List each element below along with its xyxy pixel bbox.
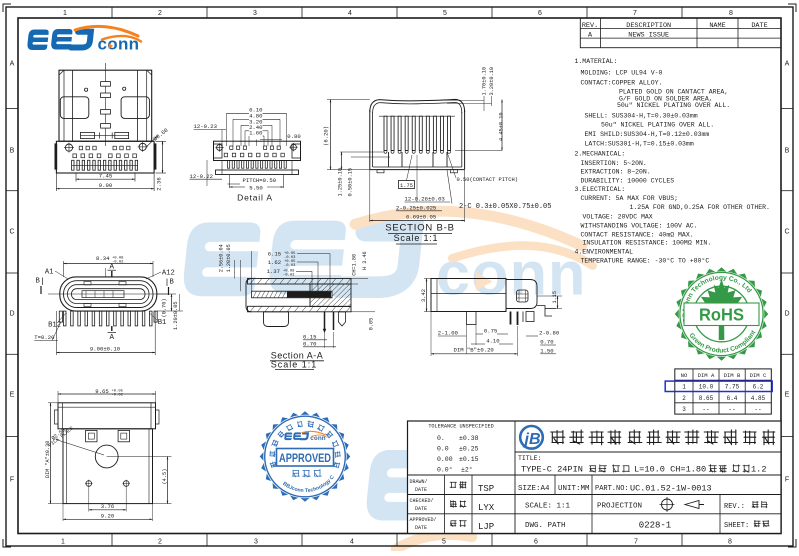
svg-text:1.70±0.10: 1.70±0.10 (482, 67, 488, 96)
svg-text:2: 2 (682, 395, 686, 402)
svg-text:TITLE:: TITLE: (518, 455, 541, 462)
svg-text:PROJECTION: PROJECTION (597, 503, 642, 511)
svg-text:LYX: LYX (478, 503, 495, 513)
svg-text:TSP: TSP (478, 484, 494, 494)
svg-text:0.50±0.15: 0.50±0.15 (348, 168, 354, 197)
svg-text:TOLERANCE UNSPECIFIED: TOLERANCE UNSPECIFIED (428, 424, 493, 430)
svg-text:12-0.26±0.03: 12-0.26±0.03 (405, 196, 445, 203)
svg-text:1.MATERIAL:: 1.MATERIAL: (575, 58, 618, 65)
svg-text:DURABILITY: 10000 CYCLES: DURABILITY: 10000 CYCLES (581, 178, 675, 185)
svg-text:2: 2 (158, 10, 162, 17)
svg-text:50u" NICKEL PLATING OVER ALL.: 50u" NICKEL PLATING OVER ALL. (601, 122, 714, 129)
svg-text:0.: 0. (437, 435, 445, 442)
svg-text:7.75: 7.75 (725, 384, 740, 391)
svg-text:DIM A: DIM A (698, 372, 715, 379)
svg-text:0.80: 0.80 (287, 133, 301, 140)
svg-text:--: -- (728, 406, 735, 413)
svg-text:SHEET:: SHEET: (724, 522, 749, 530)
svg-text:A: A (785, 61, 790, 68)
svg-text:CONTACT:COPPER ALLOY.: CONTACT:COPPER ALLOY. (581, 80, 663, 87)
svg-text:SCALE: 1:1: SCALE: 1:1 (525, 503, 571, 511)
svg-text:UC.01.52-1W-0013: UC.01.52-1W-0013 (630, 484, 712, 494)
svg-text:±0.15: ±0.15 (459, 456, 479, 463)
svg-text:(6.20): (6.20) (323, 126, 330, 146)
svg-text:0.05: 0.05 (369, 318, 375, 330)
svg-text:4: 4 (348, 10, 352, 17)
svg-text:DESCRIPTION: DESCRIPTION (626, 22, 671, 30)
svg-text:1.20±0.05: 1.20±0.05 (226, 244, 232, 272)
svg-text:DIM C: DIM C (750, 372, 767, 379)
svg-text:E: E (785, 392, 790, 399)
svg-text:9.65: 9.65 (95, 388, 108, 395)
svg-text:DRAWN/: DRAWN/ (410, 479, 428, 485)
svg-text:1.25A FOR GND,0.25A FOR OTHER: 1.25A FOR GND,0.25A FOR OTHER OTHER. (630, 204, 770, 211)
svg-text:INSULATION RESISTANCE: 100MΩ M: INSULATION RESISTANCE: 100MΩ MIN. (583, 240, 712, 247)
svg-text:3.42: 3.42 (421, 289, 427, 302)
svg-text:MOLDING: LCP UL94 V-0: MOLDING: LCP UL94 V-0 (581, 70, 663, 77)
svg-text:4.85: 4.85 (751, 395, 766, 402)
svg-text:NAME: NAME (709, 22, 725, 30)
svg-text:--: -- (702, 406, 709, 413)
svg-text:TYPE-C 24PIN: TYPE-C 24PIN (521, 465, 583, 475)
svg-text:L=10.0 CH=1.80: L=10.0 CH=1.80 (634, 465, 706, 475)
svg-text:2.56±0.04: 2.56±0.04 (219, 244, 225, 272)
svg-text:NEWS ISSUE: NEWS ISSUE (628, 32, 669, 40)
svg-text:1.37: 1.37 (267, 268, 280, 275)
svg-text:DATE: DATE (751, 22, 767, 30)
svg-text:TEMPERATURE RANGE: -30°C TO +8: TEMPERATURE RANGE: -30°C TO +80°C (581, 257, 710, 265)
svg-text:DIM "A"±0.30: DIM "A"±0.30 (45, 441, 51, 478)
svg-text:B: B (10, 148, 15, 155)
svg-text:B: B (785, 148, 790, 155)
svg-text:2-0.80: 2-0.80 (539, 330, 560, 337)
svg-text:2.36: 2.36 (156, 177, 163, 190)
svg-text:0.50(CONTACT PITCH): 0.50(CONTACT PITCH) (457, 177, 518, 183)
svg-text:8: 8 (728, 539, 732, 546)
svg-text:DWG. PATH: DWG. PATH (525, 522, 566, 530)
svg-text:1: 1 (63, 10, 67, 17)
svg-text:REV.:: REV.: (724, 503, 745, 511)
svg-text:9.00±0.10: 9.00±0.10 (90, 346, 121, 353)
svg-text:INSERTION: 5~20N.: INSERTION: 5~20N. (581, 160, 647, 167)
svg-text:0.15: 0.15 (303, 333, 316, 340)
svg-text:0.00: 0.00 (437, 456, 453, 463)
svg-text:F: F (10, 477, 14, 484)
svg-text:DATE: DATE (415, 525, 427, 531)
svg-text:4.45±0.10: 4.45±0.10 (499, 112, 505, 141)
svg-text:7.45: 7.45 (99, 173, 112, 180)
svg-text:PART.NO:: PART.NO: (595, 485, 629, 493)
svg-text:VOLTAGE: 20VDC MAX: VOLTAGE: 20VDC MAX (583, 213, 653, 220)
svg-text:1.2: 1.2 (751, 465, 766, 475)
svg-text:0228-1: 0228-1 (639, 521, 671, 531)
svg-text:APPROVED/: APPROVED/ (410, 517, 437, 523)
svg-text:6.2: 6.2 (753, 384, 764, 391)
svg-text:A: A (110, 334, 115, 342)
svg-text:6: 6 (534, 539, 538, 546)
svg-text:D: D (9, 311, 14, 318)
svg-text:DATE: DATE (415, 506, 427, 512)
svg-text:5: 5 (443, 10, 447, 17)
svg-text:1.62: 1.62 (268, 259, 281, 266)
svg-text:0.0°: 0.0° (437, 466, 453, 474)
svg-text:T=0.20: T=0.20 (34, 334, 55, 341)
svg-text:7: 7 (634, 539, 638, 546)
svg-text:2-1.00: 2-1.00 (438, 330, 459, 337)
svg-text:E: E (10, 392, 15, 399)
svg-text:3: 3 (254, 539, 258, 546)
svg-text:1.20±0.05: 1.20±0.05 (173, 301, 179, 330)
svg-text:A1: A1 (45, 269, 54, 277)
svg-text:REV.: REV. (582, 22, 598, 30)
svg-text:9.00: 9.00 (99, 182, 113, 189)
svg-text:0.70: 0.70 (540, 339, 554, 346)
svg-text:1: 1 (682, 384, 686, 391)
svg-text:3.ELECTRICAL:: 3.ELECTRICAL: (575, 186, 626, 193)
svg-text:2-C 0.3±0.05X0.75±0.05: 2-C 0.3±0.05X0.75±0.05 (459, 203, 551, 211)
svg-text:1.75: 1.75 (400, 183, 413, 189)
svg-text:0.0: 0.0 (437, 446, 449, 453)
svg-text:1.60: 1.60 (249, 129, 263, 136)
svg-text:F: F (785, 477, 789, 484)
svg-text:2.MECHANICAL:: 2.MECHANICAL: (575, 150, 626, 157)
svg-text:RoHS: RoHS (699, 305, 744, 325)
svg-text:6.15: 6.15 (268, 251, 281, 258)
svg-text:1.15: 1.15 (552, 291, 558, 303)
svg-text:B: B (170, 279, 175, 287)
svg-text:B1: B1 (158, 319, 167, 327)
svg-text:8: 8 (729, 10, 733, 17)
svg-text:12-0.22: 12-0.22 (190, 173, 214, 180)
svg-text:5.50: 5.50 (249, 184, 263, 191)
svg-text:±0.25: ±0.25 (459, 446, 479, 453)
svg-text:-0.02: -0.02 (112, 393, 124, 397)
svg-text:7: 7 (633, 10, 637, 17)
svg-text:CH=1.80: CH=1.80 (352, 254, 358, 276)
svg-text:0.75: 0.75 (484, 327, 497, 334)
svg-text:3.76: 3.76 (101, 503, 114, 510)
svg-text:8.65: 8.65 (699, 395, 714, 402)
svg-text:B: B (36, 278, 41, 286)
svg-text:50u" NICKEL PLATING OVER ALL.: 50u" NICKEL PLATING OVER ALL. (617, 102, 730, 109)
svg-text:6.69±0.05: 6.69±0.05 (406, 213, 436, 220)
svg-text:1.25±0.10: 1.25±0.10 (338, 168, 344, 197)
svg-text:D: D (784, 311, 789, 318)
svg-text:LATCH:SUS301-H,T=0.15±0.03mm: LATCH:SUS301-H,T=0.15±0.03mm (585, 140, 694, 147)
svg-text:±2°: ±2° (461, 466, 473, 474)
svg-text:(0.70): (0.70) (162, 298, 168, 317)
svg-text:Scale 1:1: Scale 1:1 (394, 233, 439, 243)
svg-text:EMI SHILD:SUS304-H,T=0.12±0.03: EMI SHILD:SUS304-H,T=0.12±0.03mm (585, 131, 710, 138)
svg-text:Scale 1:1: Scale 1:1 (271, 359, 318, 369)
svg-text:Detail A: Detail A (237, 192, 273, 202)
svg-text:SHELL: SUS304-H,T=0.30±0.03mm: SHELL: SUS304-H,T=0.30±0.03mm (585, 113, 698, 120)
svg-text:1.50: 1.50 (540, 347, 554, 354)
svg-text:C: C (784, 229, 789, 236)
svg-text:--: -- (754, 406, 761, 413)
svg-text:5: 5 (442, 539, 446, 546)
svg-text:DIM "B"±0.20: DIM "B"±0.20 (454, 346, 495, 353)
svg-text:4.10: 4.10 (486, 337, 500, 344)
svg-text:EXTRACTION: 8~20N.: EXTRACTION: 8~20N. (581, 168, 651, 175)
svg-text:CHECKED/: CHECKED/ (410, 498, 434, 504)
svg-text:DATE: DATE (415, 487, 427, 493)
svg-text:NO: NO (681, 372, 688, 379)
svg-text:LJP: LJP (478, 522, 494, 532)
svg-text:SIZE:A4: SIZE:A4 (518, 485, 550, 493)
svg-text:12-0.23: 12-0.23 (194, 123, 218, 130)
svg-text:6.4: 6.4 (727, 395, 738, 402)
svg-text:4.ENVIRONMENTAL: 4.ENVIRONMENTAL (575, 249, 634, 256)
svg-text:-0.03: -0.03 (284, 264, 296, 268)
svg-text:DIM B: DIM B (724, 372, 741, 379)
svg-text:3.20±0.10: 3.20±0.10 (489, 67, 495, 96)
svg-text:2-0.25±0.025: 2-0.25±0.025 (396, 204, 436, 211)
svg-text:PITCH=0.50: PITCH=0.50 (243, 177, 277, 184)
svg-text:A: A (10, 61, 15, 68)
svg-text:jB: jB (523, 431, 541, 448)
svg-text:1: 1 (61, 539, 65, 546)
svg-text:3: 3 (253, 10, 257, 17)
svg-text:±0.38: ±0.38 (459, 435, 479, 442)
svg-text:SECTION B-B: SECTION B-B (385, 222, 455, 233)
svg-text:0.70: 0.70 (303, 340, 317, 347)
svg-text:4: 4 (350, 539, 354, 546)
svg-text:(4.5): (4.5) (162, 469, 168, 485)
svg-text:CONTACT RESISTANCE: 40mΩ MAX.: CONTACT RESISTANCE: 40mΩ MAX. (581, 231, 694, 238)
svg-text:UNIT:MM: UNIT:MM (558, 485, 590, 493)
svg-text:2: 2 (158, 539, 162, 546)
svg-text:CURRENT: 5A MAX FOR VBUS;: CURRENT: 5A MAX FOR VBUS; (581, 195, 679, 202)
svg-text:8.34: 8.34 (96, 255, 110, 262)
svg-text:C: C (9, 229, 14, 236)
svg-text:10.0: 10.0 (699, 384, 714, 391)
svg-text:6: 6 (538, 10, 542, 17)
svg-text:-0.03: -0.03 (283, 274, 295, 278)
svg-text:H 3.46: H 3.46 (362, 251, 368, 270)
svg-text:WITHSTANDING VOLTAGE: 100V AC.: WITHSTANDING VOLTAGE: 100V AC. (581, 222, 698, 229)
svg-text:9.20: 9.20 (101, 513, 115, 520)
svg-text:3: 3 (682, 406, 686, 413)
svg-text:APPROVED: APPROVED (279, 453, 331, 465)
svg-text:A12: A12 (162, 270, 175, 278)
